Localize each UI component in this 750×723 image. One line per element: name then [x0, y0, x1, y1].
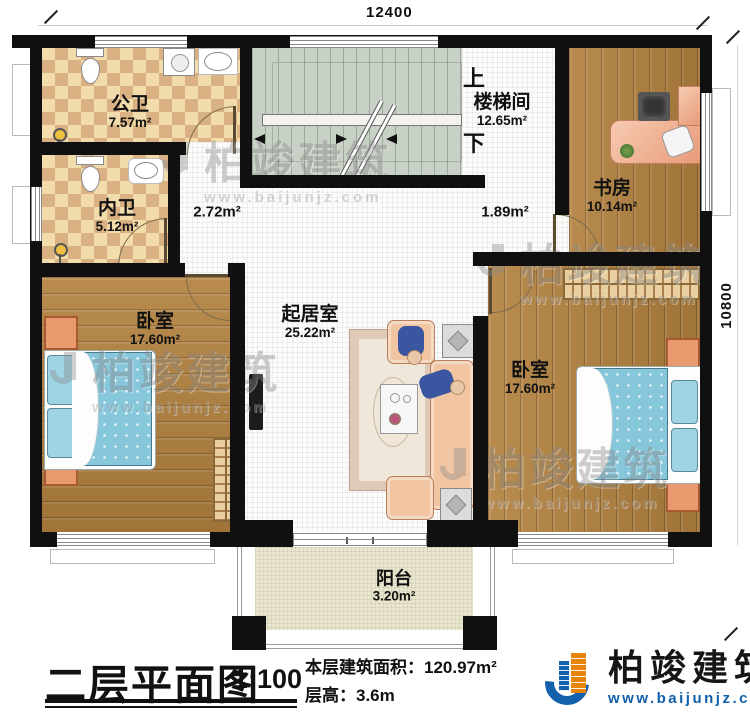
side-table [442, 324, 474, 358]
door-leaf [489, 268, 492, 314]
dimension-top: 12400 [366, 4, 413, 21]
brand-logo-icon [543, 649, 601, 707]
door-leaf [233, 106, 236, 154]
floor-height-text: 层高：3.6m [305, 681, 395, 706]
window [290, 36, 438, 48]
wall-study-south [473, 252, 712, 266]
stair-inner-edge [272, 62, 462, 162]
stair-up-label: 上 [463, 61, 485, 93]
door-leaf [553, 214, 556, 256]
side-table [440, 488, 472, 522]
tv-icon [249, 374, 263, 430]
wall-bottom [427, 532, 518, 547]
room-area: 5.12m² [96, 219, 139, 234]
corridor-area-right: 1.89m² [481, 204, 529, 221]
dimension-line-right [737, 45, 738, 545]
room-label-balcony: 阳台 3.20m² [373, 568, 416, 603]
wall-bottom [668, 532, 712, 547]
wall-bottom [210, 532, 293, 547]
sink-icon [204, 52, 232, 71]
nightstand [44, 316, 78, 350]
dimension-right: 10800 [718, 282, 735, 329]
stair-arrow [336, 134, 347, 144]
balcony-pier [232, 616, 266, 650]
wall-ensuite-east [168, 155, 180, 264]
room-area: 17.60m² [505, 381, 555, 396]
stair-handrail [262, 114, 462, 126]
wall-left [30, 48, 42, 547]
room-area: 25.22m² [281, 325, 338, 340]
room-label-bedroom-right: 卧室 17.60m² [505, 360, 555, 396]
stair-direction-arrow [254, 134, 265, 144]
wall-living-west [230, 277, 245, 532]
window-sill [712, 88, 731, 216]
window [57, 534, 210, 546]
dimension-tick [724, 627, 738, 641]
title-underline [45, 706, 297, 708]
door-leaf [185, 274, 229, 277]
wall-bottom [30, 532, 57, 547]
wall-ensuite-south [42, 263, 185, 277]
ceiling-lamp-icon [53, 128, 67, 142]
window-sill [512, 549, 674, 564]
pillow [671, 380, 698, 424]
armchair [386, 476, 434, 520]
floor-area-text: 本层建筑面积：120.97m² [305, 653, 497, 678]
washing-machine-icon [171, 54, 189, 72]
wall-study-west [555, 47, 569, 215]
stair-arrow [386, 134, 397, 144]
room-area: 3.20m² [373, 589, 416, 604]
wall-bedroom-left-north [228, 263, 245, 277]
brand-name: 柏竣建筑 [608, 649, 750, 687]
room-label-public-bath: 公卫 7.57m² [109, 94, 152, 130]
logo-building-blue [559, 661, 569, 691]
wardrobe-icon [563, 268, 700, 300]
room-name: 卧室 [130, 311, 180, 332]
window [518, 534, 668, 546]
coffee-table [380, 384, 418, 434]
window [95, 36, 187, 48]
room-name: 书房 [587, 178, 637, 199]
toilet-icon [76, 156, 104, 165]
computer-monitor-icon [638, 92, 670, 121]
room-area: 10.14m² [587, 199, 637, 214]
brand-website: www.baijunjz.com [608, 690, 750, 707]
title-underline [45, 699, 297, 703]
door-leaf [164, 218, 167, 266]
room-name: 卧室 [505, 360, 555, 381]
room-label-ensuite-bath: 内卫 5.12m² [96, 198, 139, 234]
balcony-floor [255, 547, 473, 630]
window-sill [50, 549, 215, 564]
dimension-line-top [38, 25, 708, 26]
stair-down-label: 下 [463, 126, 485, 158]
pillow [671, 428, 698, 472]
person-figure [450, 380, 465, 395]
room-label-study: 书房 10.14m² [587, 178, 637, 214]
room-name: 阳台 [373, 568, 416, 588]
sliding-door [293, 533, 427, 546]
bowl-icon [403, 395, 411, 403]
floor-plan-canvas: 12400 10800 公卫 7.57m² 内卫 5.12m² 楼梯间 12.6… [0, 0, 750, 723]
pillow [47, 355, 75, 405]
wall-stair-south [252, 175, 485, 188]
wall-stair-west [240, 47, 252, 188]
room-name: 楼梯间 [473, 92, 530, 113]
logo-building-orange [571, 653, 586, 693]
plan-scale: 1:100 [233, 664, 302, 695]
person-figure [407, 350, 422, 365]
room-label-living-room: 起居室 25.22m² [281, 304, 338, 340]
room-label-stairwell: 楼梯间 12.65m² [473, 92, 530, 128]
ceiling-lamp-icon [54, 243, 68, 257]
room-name: 内卫 [96, 198, 139, 219]
toilet-icon [76, 48, 104, 57]
room-area: 17.60m² [130, 332, 180, 347]
dimension-tick [696, 16, 710, 30]
dimension-tick [726, 30, 740, 44]
pillow [47, 408, 75, 458]
dimension-tick [44, 10, 58, 24]
brand-logo: 柏竣建筑 www.baijunjz.com [543, 649, 750, 707]
room-name: 起居室 [281, 304, 338, 325]
room-label-bedroom-left: 卧室 17.60m² [130, 311, 180, 347]
desk [678, 86, 702, 126]
wall-bedroom-right-west [473, 316, 488, 532]
window [701, 93, 712, 211]
wall-publicbath-south [42, 142, 186, 155]
corridor-area-left: 2.72m² [193, 204, 241, 221]
plant-icon [620, 144, 634, 158]
window [31, 187, 42, 241]
room-name: 公卫 [109, 94, 152, 115]
room-area: 7.57m² [109, 115, 152, 130]
flowers-icon [389, 413, 401, 425]
bowl-icon [390, 393, 400, 403]
balcony-pier [463, 616, 497, 650]
sink-icon [134, 162, 158, 179]
